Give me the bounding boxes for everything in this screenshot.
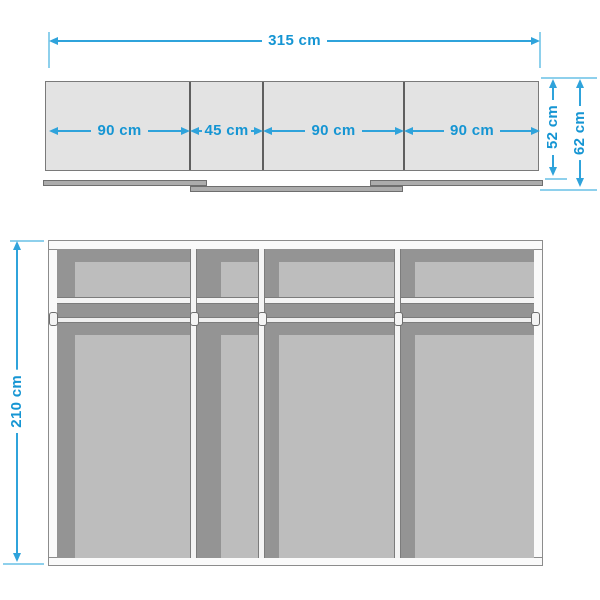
dimension-label-section-3: 90 cm <box>305 123 361 139</box>
depth-total-tick-bottom <box>540 189 597 191</box>
dimension-section-2: 45 cm <box>190 123 263 139</box>
upper-compartment-3 <box>279 262 394 297</box>
upper-compartment-4 <box>415 262 534 297</box>
divider-2 <box>258 249 265 558</box>
rail-cap-1 <box>49 312 58 326</box>
dimension-height: 210 cm <box>9 241 25 562</box>
arrow-right-icon <box>531 127 540 135</box>
cabinet-base-panel <box>48 557 543 566</box>
lower-compartment-4 <box>415 335 534 558</box>
upper-compartment-1 <box>75 262 190 297</box>
dimension-section-4: 90 cm <box>404 123 540 139</box>
lower-compartment-1 <box>75 335 190 558</box>
depth-body-tick-bottom <box>545 178 567 180</box>
arrow-down-icon <box>13 553 21 562</box>
dimension-label-depth-total: 62 cm <box>572 106 588 160</box>
dimension-label-height: 210 cm <box>9 370 25 433</box>
dimension-label-total-width: 315 cm <box>262 33 327 49</box>
dimension-label-section-2: 45 cm <box>202 123 250 139</box>
height-tick-bottom <box>3 563 44 565</box>
wardrobe-dimension-diagram: 315 cm 90 cm 45 cm 90 cm <box>0 0 600 600</box>
upper-compartment-2 <box>221 262 258 297</box>
dimension-label-depth-body: 52 cm <box>545 100 561 154</box>
lower-compartment-2 <box>221 335 258 558</box>
dimension-total-width: 315 cm <box>49 33 540 49</box>
rail-cap-5 <box>531 312 540 326</box>
arrow-right-icon <box>531 37 540 45</box>
arrow-right-icon <box>254 127 263 135</box>
sliding-door-left <box>43 180 207 186</box>
lower-compartment-3 <box>279 335 394 558</box>
dimension-section-3: 90 cm <box>263 123 404 139</box>
dimension-depth-total: 62 cm <box>572 79 588 187</box>
arrow-right-icon <box>395 127 404 135</box>
arrow-left-icon <box>190 127 199 135</box>
clothes-rail <box>54 317 539 323</box>
shelf <box>57 297 534 304</box>
arrow-left-icon <box>49 37 58 45</box>
divider-3 <box>394 249 401 558</box>
sliding-door-middle <box>190 186 403 192</box>
arrow-up-icon <box>13 241 21 250</box>
dimension-label-section-1: 90 cm <box>91 123 147 139</box>
divider-1 <box>190 249 197 558</box>
cabinet-interior <box>57 249 534 558</box>
rail-cap-3 <box>258 312 267 326</box>
dimension-section-1: 90 cm <box>49 123 190 139</box>
arrow-left-icon <box>404 127 413 135</box>
arrow-down-icon <box>576 178 584 187</box>
arrow-right-icon <box>181 127 190 135</box>
dimension-depth-body: 52 cm <box>545 79 561 176</box>
rail-cap-2 <box>190 312 199 326</box>
arrow-left-icon <box>263 127 272 135</box>
dimension-label-section-4: 90 cm <box>444 123 500 139</box>
cabinet-right-side-panel <box>533 249 543 558</box>
arrow-down-icon <box>549 167 557 176</box>
rail-cap-4 <box>394 312 403 326</box>
arrow-up-icon <box>576 79 584 88</box>
arrow-up-icon <box>549 79 557 88</box>
arrow-left-icon <box>49 127 58 135</box>
